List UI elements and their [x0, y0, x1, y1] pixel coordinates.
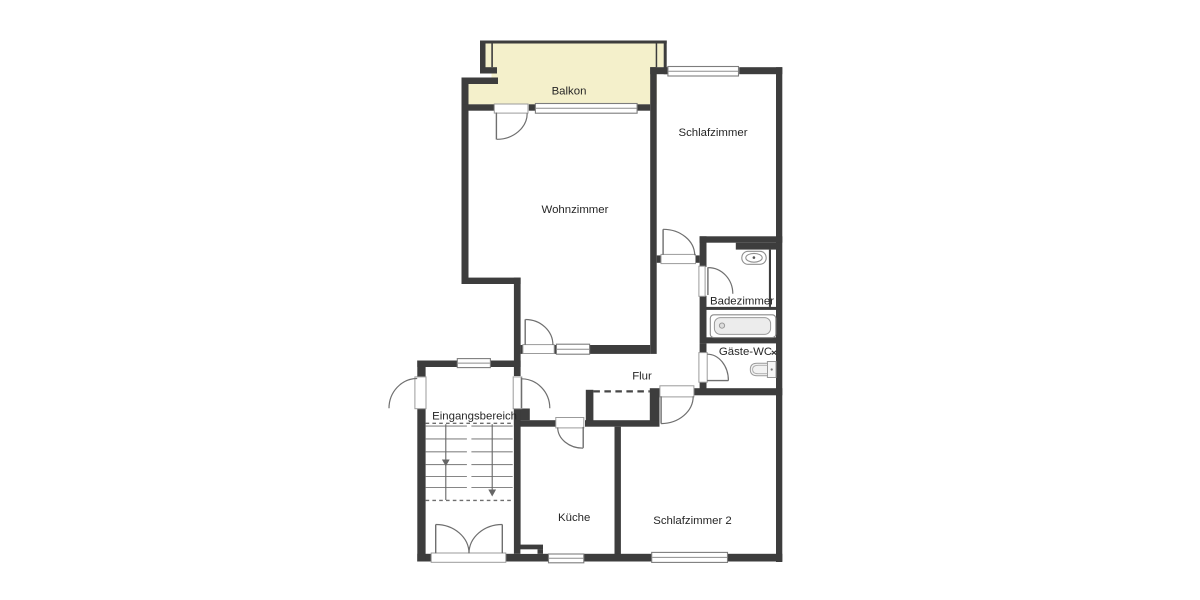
- svg-text:Küche: Küche: [558, 512, 590, 524]
- svg-text:Flur: Flur: [632, 371, 652, 383]
- svg-text:Wohnzimmer: Wohnzimmer: [542, 204, 609, 216]
- svg-text:Schlafzimmer: Schlafzimmer: [679, 127, 748, 139]
- svg-text:Eingangsbereich: Eingangsbereich: [432, 411, 517, 423]
- svg-text:Badezimmer: Badezimmer: [710, 296, 774, 308]
- svg-text:Schlafzimmer 2: Schlafzimmer 2: [653, 515, 732, 527]
- svg-text:Gäste-WC: Gäste-WC: [719, 346, 772, 358]
- svg-text:Balkon: Balkon: [552, 85, 587, 97]
